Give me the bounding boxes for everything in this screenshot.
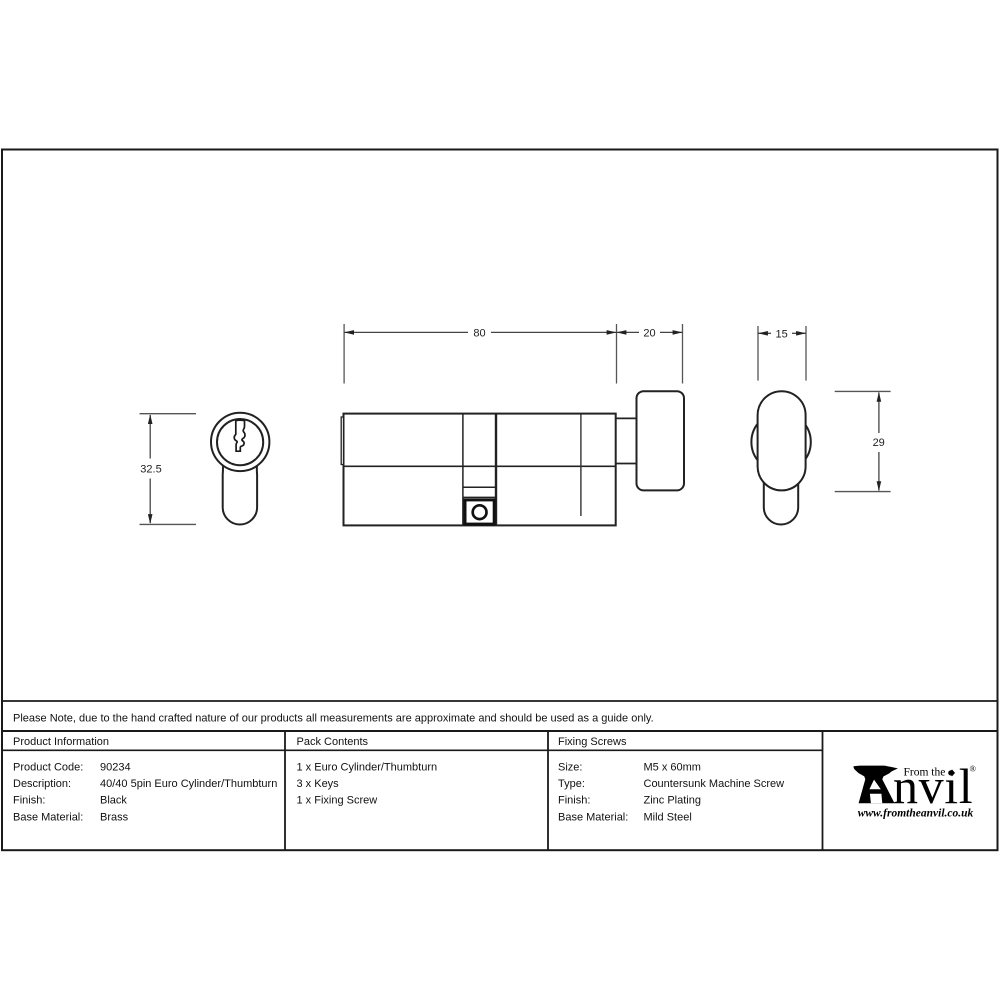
svg-text:Finish:: Finish: bbox=[13, 795, 45, 807]
svg-text:15: 15 bbox=[775, 328, 787, 340]
svg-text:Finish:: Finish: bbox=[558, 795, 590, 807]
svg-text:80: 80 bbox=[473, 327, 485, 339]
svg-text:3 x Keys: 3 x Keys bbox=[297, 778, 340, 790]
svg-text:Product Information: Product Information bbox=[13, 736, 109, 748]
svg-text:40/40 5pin Euro Cylinder/Thumb: 40/40 5pin Euro Cylinder/Thumbturn bbox=[100, 778, 277, 790]
svg-text:Black: Black bbox=[100, 795, 127, 807]
svg-text:Size:: Size: bbox=[558, 761, 582, 773]
svg-text:29: 29 bbox=[873, 437, 885, 449]
svg-text:Brass: Brass bbox=[100, 811, 129, 823]
svg-text:Description:: Description: bbox=[13, 778, 71, 790]
svg-text:20: 20 bbox=[643, 327, 655, 339]
svg-text:Zinc Plating: Zinc Plating bbox=[644, 795, 701, 807]
svg-text:Type:: Type: bbox=[558, 778, 585, 790]
svg-text:90234: 90234 bbox=[100, 761, 131, 773]
svg-text:Mild Steel: Mild Steel bbox=[644, 811, 692, 823]
svg-text:Product Code:: Product Code: bbox=[13, 761, 83, 773]
svg-text:Base Material:: Base Material: bbox=[13, 811, 83, 823]
svg-text:®: ® bbox=[970, 764, 977, 774]
svg-text:www.fromtheanvil.co.uk: www.fromtheanvil.co.uk bbox=[858, 808, 974, 820]
svg-text:M5 x 60mm: M5 x 60mm bbox=[644, 761, 701, 773]
svg-text:Countersunk Machine Screw: Countersunk Machine Screw bbox=[644, 778, 785, 790]
svg-text:32.5: 32.5 bbox=[140, 464, 161, 476]
svg-text:From the: From the bbox=[904, 767, 946, 779]
svg-text:Base Material:: Base Material: bbox=[558, 811, 628, 823]
svg-text:Fixing Screws: Fixing Screws bbox=[558, 736, 627, 748]
svg-text:1 x Fixing Screw: 1 x Fixing Screw bbox=[297, 795, 378, 807]
svg-text:Please Note, due to the hand c: Please Note, due to the hand crafted nat… bbox=[13, 712, 654, 724]
svg-text:Pack Contents: Pack Contents bbox=[297, 736, 369, 748]
svg-text:1 x Euro Cylinder/Thumbturn: 1 x Euro Cylinder/Thumbturn bbox=[297, 761, 438, 773]
